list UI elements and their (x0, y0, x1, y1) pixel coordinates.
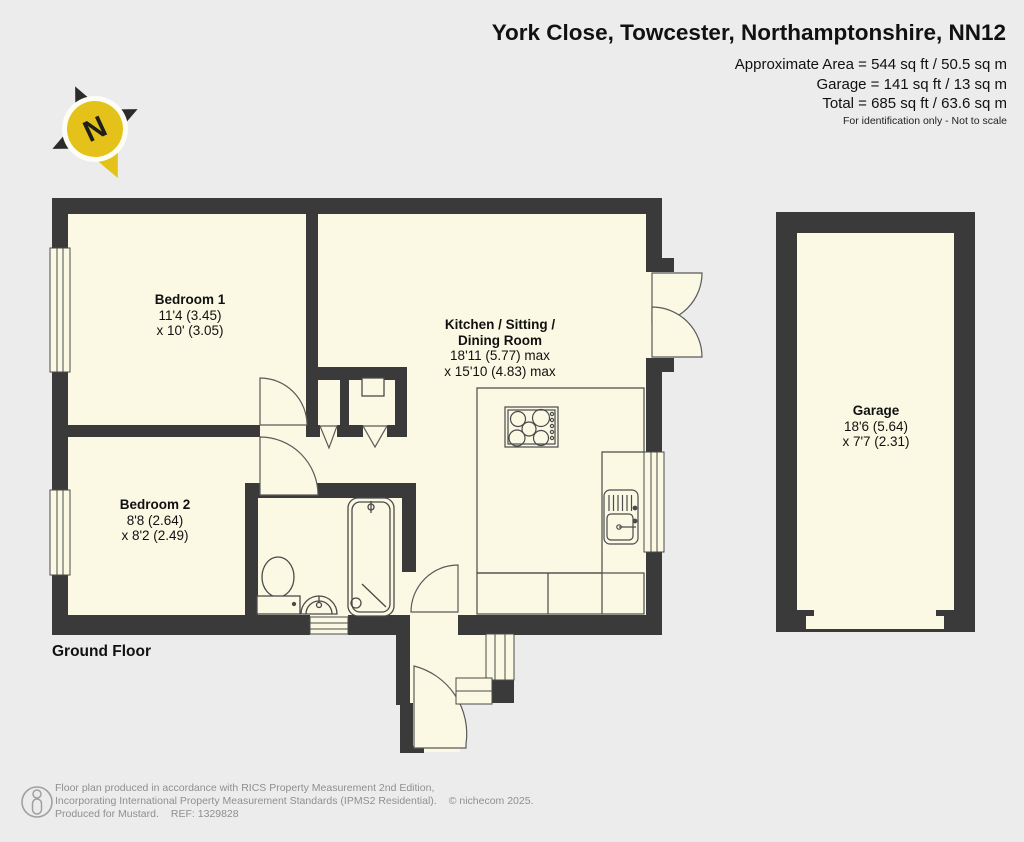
footer-ipms-text: Incorporating International Property Mea… (55, 795, 437, 807)
bath-icon (348, 498, 394, 616)
garage-dim1: 18'6 (5.64) (796, 419, 956, 435)
copyright-text: © nichecom 2025. (449, 795, 534, 807)
house-floor (60, 206, 654, 752)
bedroom1-dim2: x 10' (3.05) (110, 323, 270, 339)
bedroom1-name: Bedroom 1 (110, 292, 270, 308)
person-icon (20, 783, 56, 821)
tank-icon (362, 378, 384, 396)
compass-icon: N (33, 67, 161, 198)
produced-for-text: Produced for Mustard. (55, 808, 159, 820)
garage-label: Garage 18'6 (5.64) x 7'7 (2.31) (796, 403, 956, 450)
bathroom-window (310, 617, 348, 634)
hob-icon (505, 407, 558, 447)
bedroom1-label: Bedroom 1 11'4 (3.45) x 10' (3.05) (110, 292, 270, 339)
kitchen-window (644, 452, 664, 552)
page-title: York Close, Towcester, Northamptonshire,… (492, 20, 1006, 46)
footer-line3: Produced for Mustard.REF: 1329828 (55, 808, 534, 821)
garage-door-opening (806, 610, 944, 629)
footer-disclaimer: Floor plan produced in accordance with R… (55, 782, 534, 822)
bedroom2-dim2: x 8'2 (2.49) (75, 528, 235, 544)
footer-line1: Floor plan produced in accordance with R… (55, 782, 534, 795)
french-door-bottom (652, 307, 702, 357)
bedroom1-dim1: 11'4 (3.45) (110, 308, 270, 324)
kitchen-dim1: 18'11 (5.77) max (420, 348, 580, 364)
bedroom1-window (50, 248, 70, 372)
garage-name: Garage (796, 403, 956, 419)
kitchen-dim2: x 15'10 (4.83) max (420, 364, 580, 380)
area-summary: Approximate Area = 544 sq ft / 50.5 sq m… (735, 55, 1007, 114)
porch-window (486, 634, 514, 680)
scale-disclaimer: For identification only - Not to scale (843, 115, 1007, 127)
porch-steps (456, 678, 492, 704)
garage-dim2: x 7'7 (2.31) (796, 434, 956, 450)
reference-number: REF: 1329828 (171, 808, 239, 820)
kitchen-sink-icon (604, 490, 638, 544)
bedroom2-label: Bedroom 2 8'8 (2.64) x 8'2 (2.49) (75, 497, 235, 544)
kitchen-label: Kitchen / Sitting / Dining Room 18'11 (5… (420, 317, 580, 379)
floorplan-page: N York Close, Towcester, Northamptonshir… (0, 0, 1024, 842)
floor-name: Ground Floor (52, 643, 151, 661)
bedroom2-window (50, 490, 70, 575)
kitchen-name-line1: Kitchen / Sitting / (420, 317, 580, 333)
kitchen-name-line2: Dining Room (420, 333, 580, 349)
approximate-area: Approximate Area = 544 sq ft / 50.5 sq m (735, 55, 1007, 75)
garage-area: Garage = 141 sq ft / 13 sq m (735, 75, 1007, 95)
total-area: Total = 685 sq ft / 63.6 sq m (735, 94, 1007, 114)
bedroom2-name: Bedroom 2 (75, 497, 235, 513)
bedroom2-dim1: 8'8 (2.64) (75, 513, 235, 529)
footer-line2: Incorporating International Property Mea… (55, 795, 534, 808)
